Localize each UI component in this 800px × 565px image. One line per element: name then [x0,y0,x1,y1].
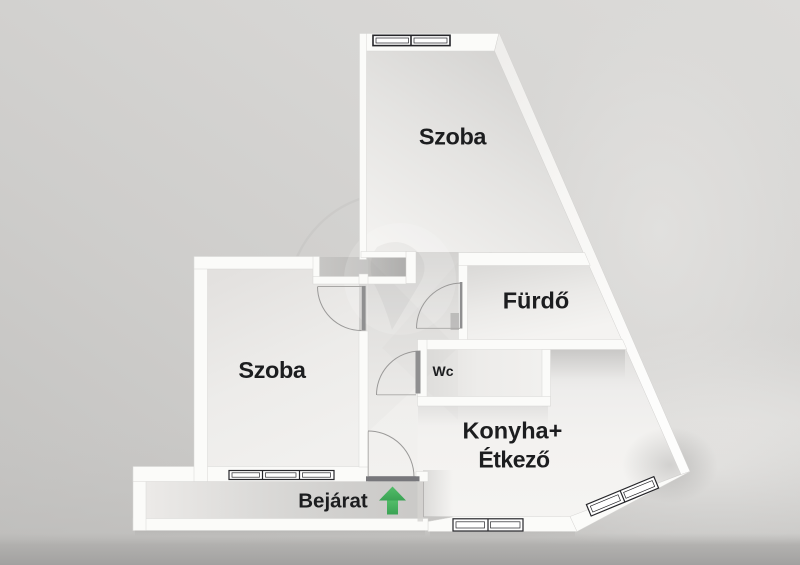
svg-text:Bejárat: Bejárat [298,490,368,513]
svg-text:Wc: Wc [433,363,454,379]
svg-text:Étkező: Étkező [478,445,550,472]
svg-text:Szoba: Szoba [419,123,488,149]
svg-text:Fürdő: Fürdő [503,288,570,314]
svg-text:Szoba: Szoba [238,357,307,383]
svg-text:Konyha+: Konyha+ [462,418,562,444]
